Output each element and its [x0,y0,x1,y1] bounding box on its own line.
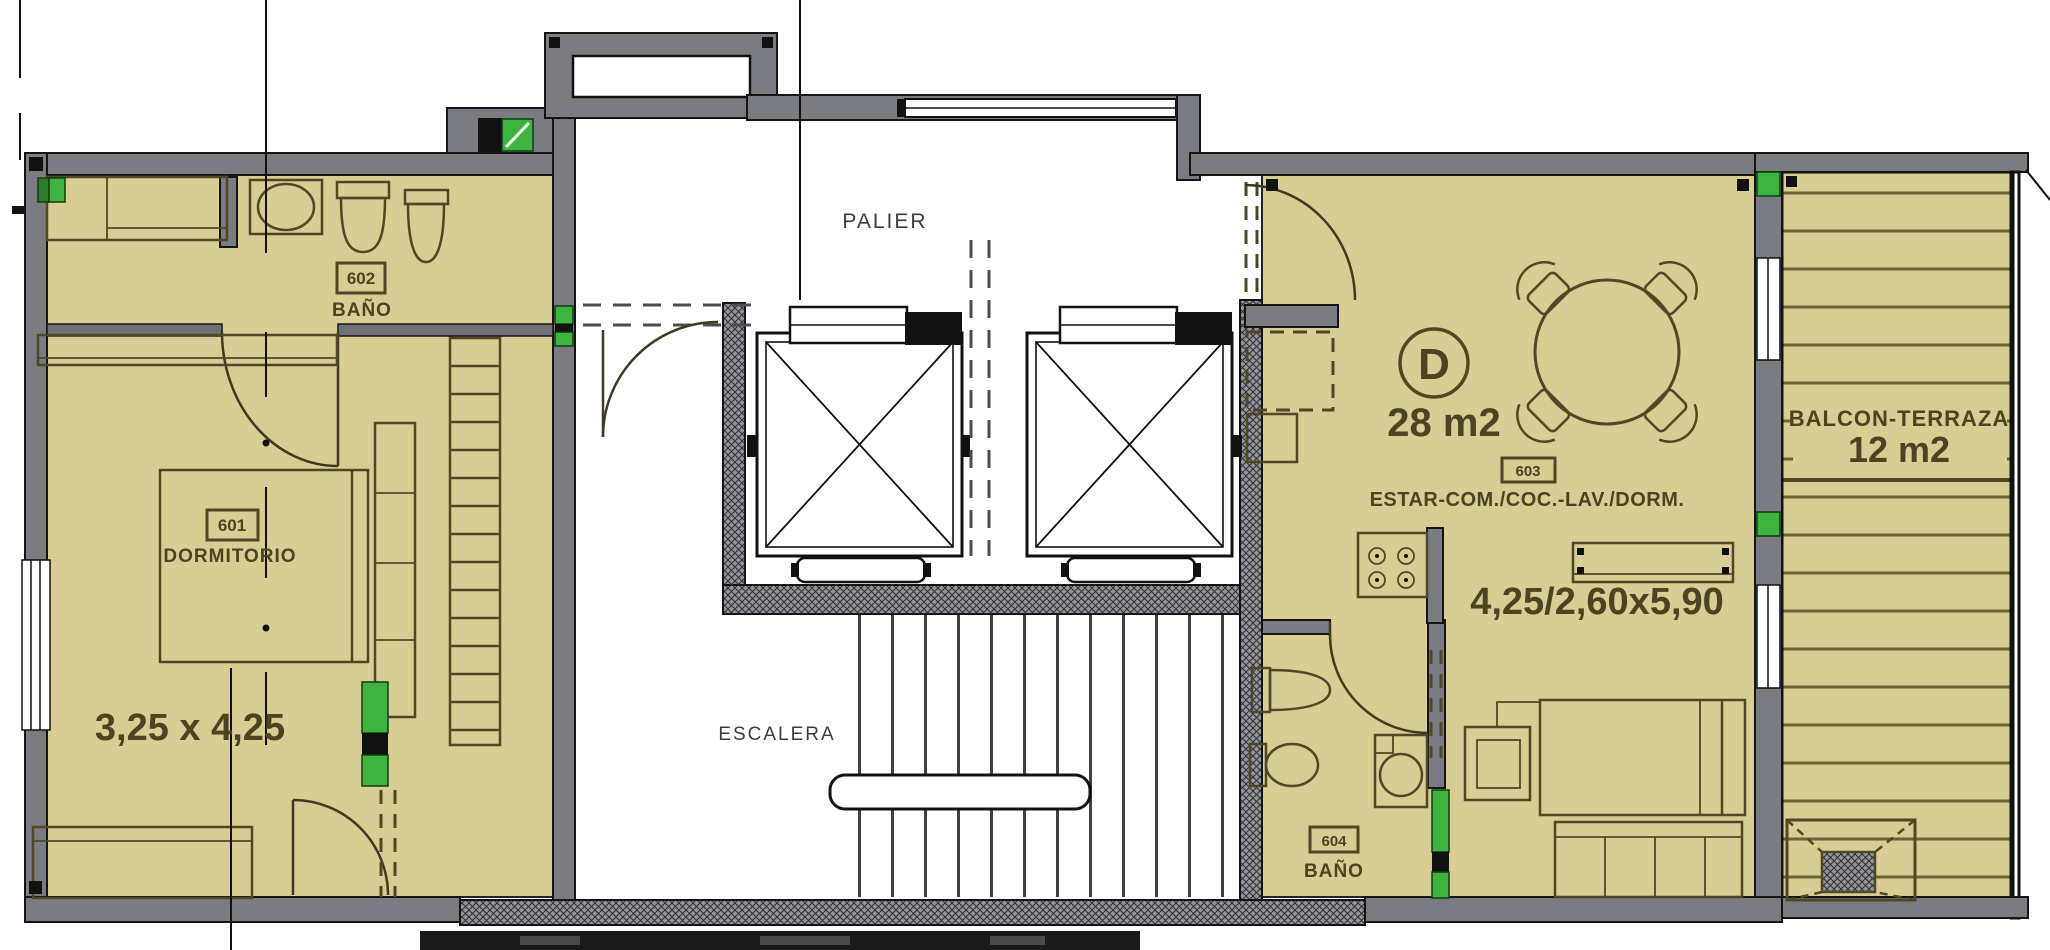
bedroom-window-icon [22,560,50,730]
stair-handrail-icon [830,775,1090,809]
elevator-counterweight-icon [797,558,925,582]
door-swing-601-entry-icon [603,322,718,437]
estar-dimensions: 4,25/2,60x5,90 [1470,581,1724,623]
balcony-floor [1782,172,2013,900]
bottom-cutoff-strip [420,931,1140,950]
bano-604-label: BAÑO [1304,860,1364,882]
counter-icon [1245,305,1338,327]
balcon-label: BALCON-TERRAZA [1789,406,2010,431]
escalera-label: ESCALERA [718,724,835,745]
room-603-code: 603 [1515,463,1540,480]
dormitorio-dimensions: 3,25 x 4,25 [95,707,285,749]
estar-label: ESTAR-COM./COC.-LAV./DORM. [1370,489,1685,511]
room-601-code: 601 [218,516,246,535]
floor-plan-svg: PALIER ESCALERA 601 DORMITORIO 3,25 x 4,… [0,0,2050,950]
dormitorio-label: DORMITORIO [163,546,296,567]
room-604-code: 604 [1321,833,1347,850]
bano-602-label: BAÑO [332,299,392,321]
unit-area: 28 m2 [1387,401,1500,445]
room-602-code: 602 [347,269,375,288]
palier-label: PALIER [842,210,927,233]
shelving-band-icon [450,330,500,745]
elevator-2 [1027,307,1242,582]
floor-plan-page: PALIER ESCALERA 601 DORMITORIO 3,25 x 4,… [0,0,2050,950]
unit-letter: D [1418,340,1450,389]
balcon-area: 12 m2 [1848,429,1950,470]
staircase [830,614,1240,897]
elevator-counterweight-icon [1067,558,1195,582]
elevator-1 [747,307,970,582]
balcony-labels: BALCON-TERRAZA 12 m2 [1789,400,2010,474]
